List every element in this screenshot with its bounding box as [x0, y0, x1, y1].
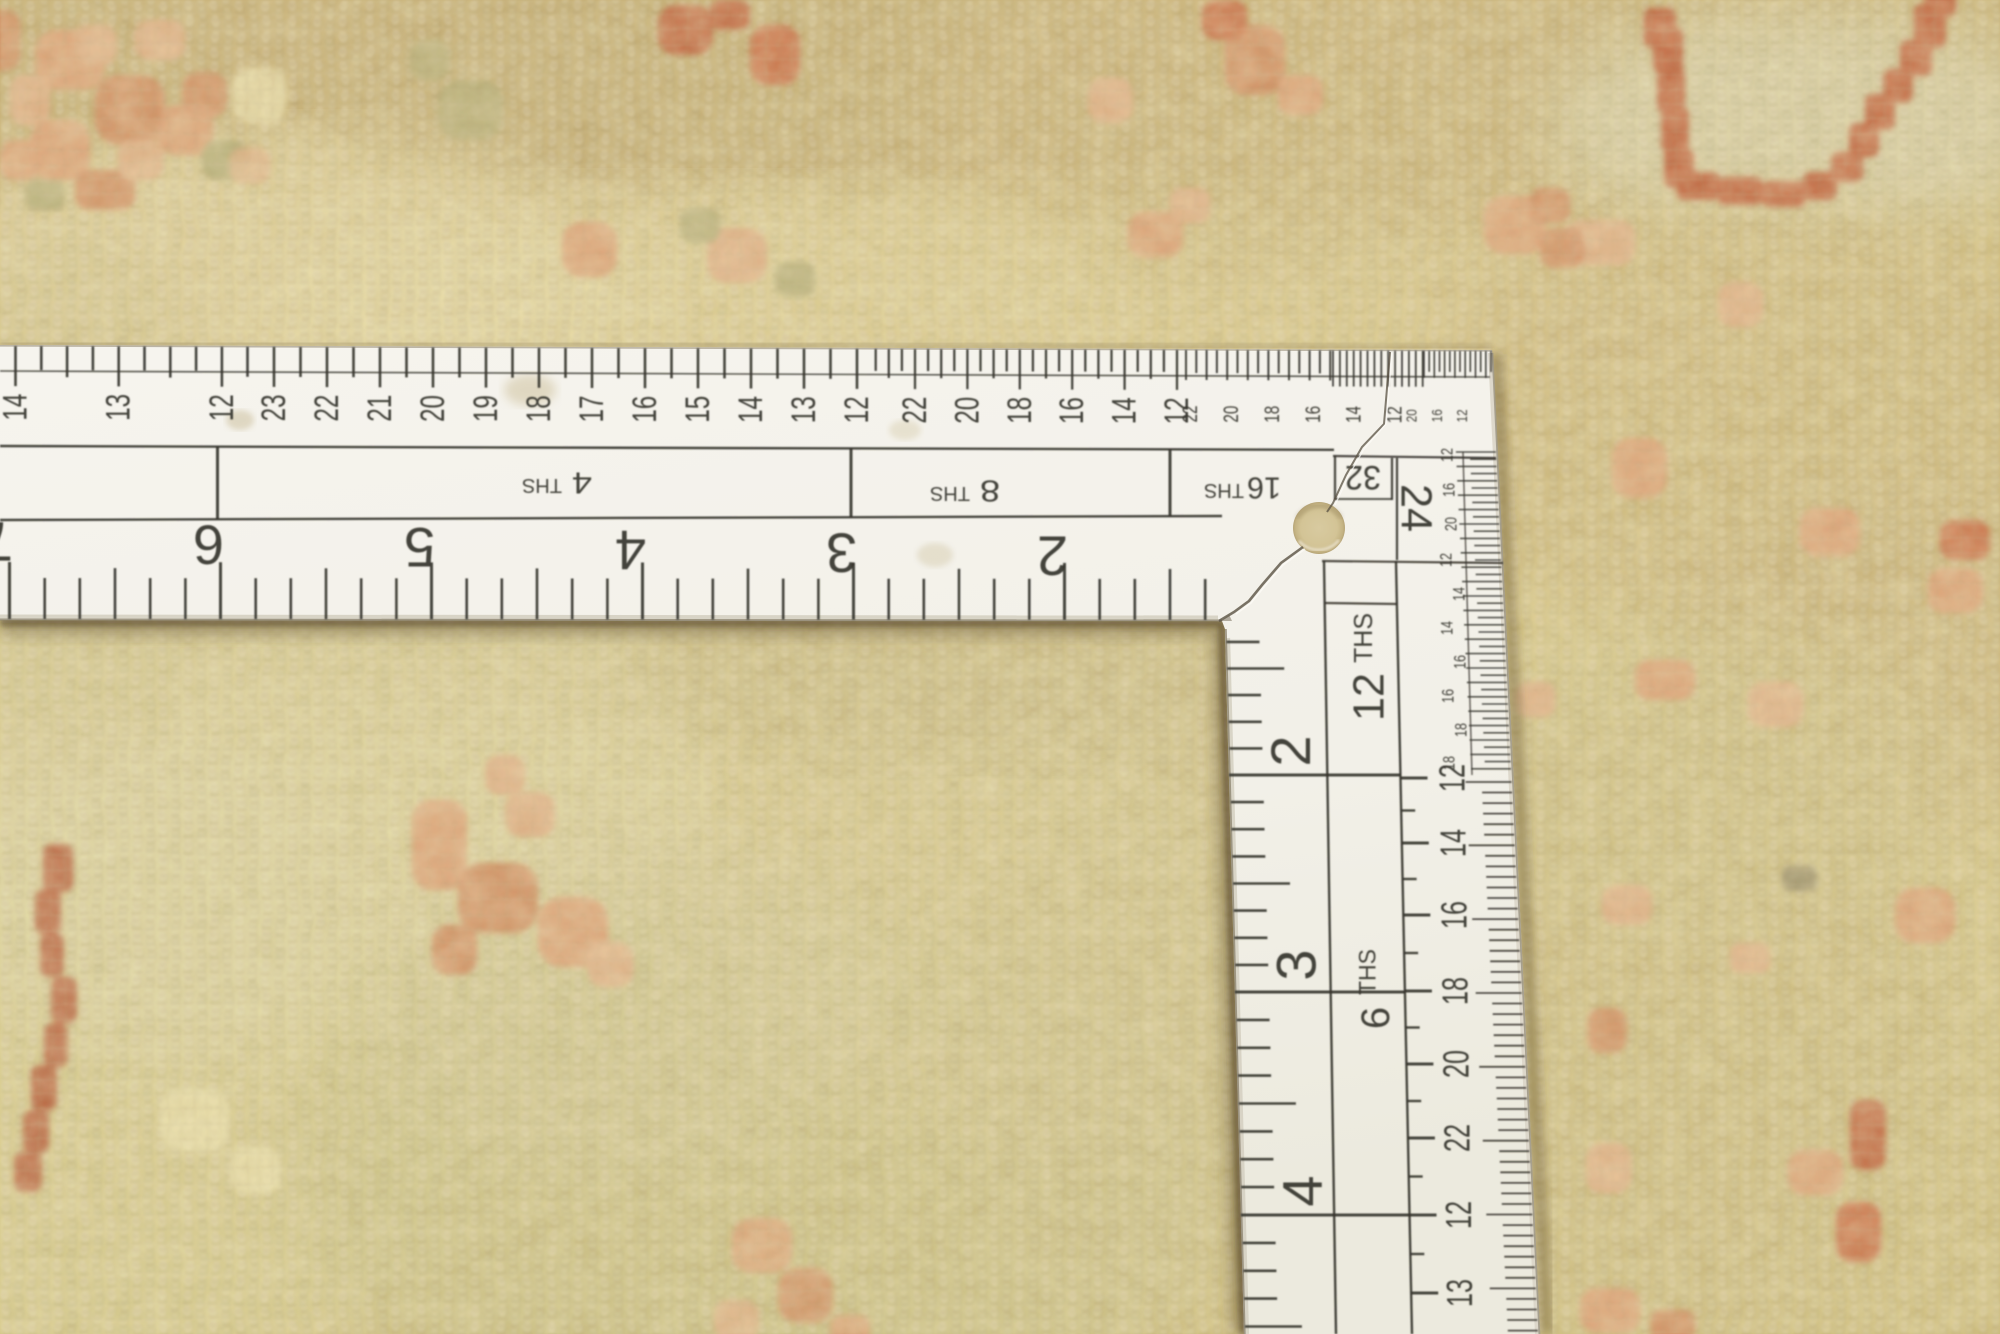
svg-text:14: 14: [0, 394, 35, 421]
svg-text:THS: THS: [522, 474, 562, 496]
svg-text:18: 18: [1452, 723, 1471, 737]
svg-text:4: 4: [615, 519, 646, 582]
svg-text:18: 18: [1261, 406, 1284, 423]
svg-text:THS: THS: [1204, 479, 1244, 501]
svg-text:22: 22: [896, 397, 934, 424]
svg-text:16: 16: [1451, 655, 1470, 669]
svg-text:16: 16: [1429, 409, 1446, 422]
svg-text:15: 15: [679, 396, 717, 423]
svg-text:14: 14: [1432, 829, 1473, 857]
svg-text:3: 3: [1265, 949, 1328, 980]
svg-text:20: 20: [1404, 409, 1421, 422]
svg-text:20: 20: [1442, 517, 1461, 531]
svg-text:22: 22: [308, 395, 346, 422]
svg-text:12: 12: [1438, 448, 1457, 462]
svg-text:21: 21: [361, 395, 399, 422]
svg-text:24: 24: [1392, 484, 1441, 532]
svg-text:16: 16: [1434, 901, 1475, 929]
svg-text:4: 4: [572, 466, 592, 501]
svg-text:14: 14: [1343, 406, 1366, 423]
svg-text:19: 19: [467, 395, 505, 422]
svg-text:2: 2: [1037, 524, 1068, 587]
svg-text:20: 20: [414, 395, 452, 422]
svg-text:12: 12: [1345, 673, 1394, 721]
svg-text:16: 16: [1439, 689, 1458, 703]
svg-text:18: 18: [1435, 977, 1476, 1005]
svg-text:12: 12: [1437, 553, 1456, 567]
svg-text:THS: THS: [1348, 613, 1378, 663]
svg-text:20: 20: [1436, 1050, 1477, 1078]
svg-text:23: 23: [255, 394, 293, 421]
svg-text:3: 3: [826, 522, 857, 585]
svg-text:14: 14: [1438, 621, 1457, 635]
svg-text:12: 12: [1454, 409, 1471, 422]
svg-text:18: 18: [1440, 756, 1459, 770]
svg-text:4: 4: [1271, 1175, 1334, 1206]
svg-text:2: 2: [1259, 735, 1322, 766]
svg-text:20: 20: [1220, 406, 1243, 423]
svg-text:THS: THS: [1355, 949, 1382, 995]
svg-text:14: 14: [1106, 397, 1144, 424]
svg-text:16: 16: [1302, 406, 1325, 423]
svg-text:7: 7: [0, 511, 13, 574]
svg-text:18: 18: [1001, 397, 1039, 424]
svg-text:16: 16: [1247, 471, 1281, 506]
svg-text:16: 16: [1440, 483, 1459, 497]
svg-text:16: 16: [626, 396, 664, 423]
svg-text:THS: THS: [930, 482, 970, 504]
svg-text:13: 13: [100, 394, 138, 421]
svg-text:13: 13: [785, 396, 823, 423]
svg-text:8: 8: [980, 474, 1000, 509]
svg-text:13: 13: [1439, 1279, 1480, 1307]
svg-text:32: 32: [1345, 458, 1381, 496]
svg-text:12: 12: [203, 394, 241, 421]
svg-text:12: 12: [1438, 1201, 1479, 1229]
svg-text:6: 6: [1354, 1007, 1398, 1029]
svg-text:14: 14: [732, 396, 770, 423]
svg-text:22: 22: [1179, 406, 1202, 423]
svg-text:20: 20: [948, 397, 986, 424]
svg-text:5: 5: [404, 516, 435, 579]
svg-text:6: 6: [193, 513, 224, 576]
svg-text:18: 18: [520, 395, 558, 422]
svg-text:22: 22: [1437, 1124, 1478, 1152]
svg-text:14: 14: [1450, 587, 1469, 601]
svg-text:16: 16: [1053, 397, 1091, 424]
svg-text:17: 17: [573, 396, 611, 423]
svg-text:12: 12: [838, 396, 876, 423]
